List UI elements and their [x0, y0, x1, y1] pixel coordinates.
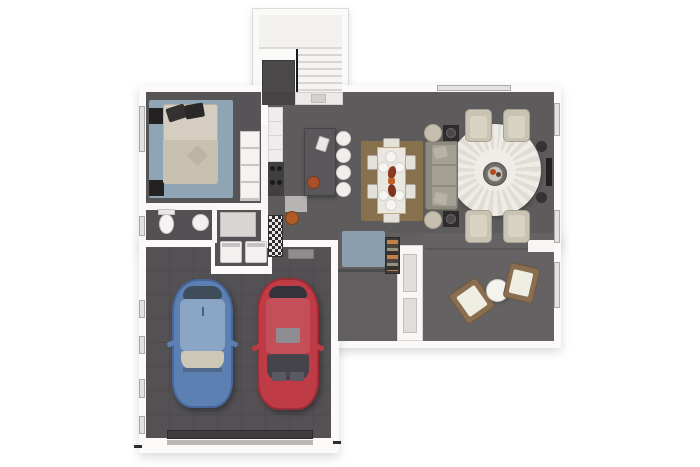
- island-stool-3: [336, 165, 351, 180]
- living-speaker-2: [536, 192, 547, 203]
- island-stool-1: [336, 131, 351, 146]
- window-garage-west-2: [139, 336, 145, 354]
- wall-bath-stub: [240, 203, 268, 210]
- window-garage-west-1: [139, 300, 145, 318]
- car-blue-windshield: [181, 351, 224, 369]
- toilet-bowl: [159, 214, 174, 234]
- kitchen-mat: [285, 196, 307, 212]
- island-pot: [307, 176, 320, 189]
- stair-closet: [262, 60, 295, 96]
- window-bedroom-west: [139, 106, 145, 152]
- living-speaker-1: [536, 141, 547, 152]
- laundry-counter: [220, 212, 256, 237]
- step-marker-left: [134, 445, 142, 448]
- window-living-north: [437, 85, 511, 91]
- stove-burner-1: [270, 166, 275, 171]
- armchair-bottom-left-cushion: [470, 215, 487, 237]
- dryer-top: [247, 243, 265, 247]
- living-console: [546, 158, 552, 186]
- step-marker-right: [333, 441, 341, 444]
- window-bath-west: [139, 216, 145, 236]
- wall-bedroom-bath: [146, 203, 217, 210]
- window-den-east: [554, 262, 560, 308]
- window-living-east-2: [554, 210, 560, 243]
- tray-item-2: [496, 172, 501, 177]
- dining-plate-top: [385, 151, 397, 163]
- wall-den-stub: [528, 240, 554, 252]
- stair-landing: [259, 15, 342, 48]
- car-red-roof: [266, 298, 310, 354]
- den-floor-seam: [425, 248, 528, 250]
- car-blue-cowl: [183, 368, 222, 372]
- garage-entry-mat: [288, 249, 314, 259]
- armchair-top-right-cushion: [508, 116, 525, 138]
- closet-shelving: [240, 131, 260, 201]
- bath-sink: [192, 214, 209, 231]
- armchair-top-left-cushion: [470, 116, 487, 138]
- kitchen-sink: [311, 94, 326, 103]
- car-blue-antenna: [202, 307, 204, 316]
- garage-door-exterior: [167, 440, 313, 445]
- stove-burner-4: [277, 180, 282, 185]
- stove-burner-3: [270, 180, 275, 185]
- kitchen-cabinets: [268, 107, 283, 162]
- car-red-rear-window: [269, 286, 307, 298]
- nightstand-top: [149, 108, 164, 124]
- car-red-sunroof: [276, 328, 300, 343]
- window-garage-west-3: [139, 379, 145, 398]
- wall-bath-laundry: [212, 210, 217, 243]
- car-red-seat-right: [290, 372, 304, 381]
- entry-threshold: [338, 269, 385, 272]
- wall-bedroom-hall: [261, 125, 268, 248]
- washer-top: [222, 243, 240, 247]
- car-red-seat-left: [272, 372, 286, 381]
- side-table-bottom-tray: [446, 214, 456, 224]
- dining-dish: [388, 178, 395, 184]
- dining-chair-right-2: [405, 184, 416, 199]
- sofa-pillow-2: [433, 192, 448, 205]
- ottoman-top: [424, 124, 442, 142]
- island-stool-2: [336, 148, 351, 163]
- window-living-east-1: [554, 103, 560, 136]
- kitchen-plant: [285, 211, 299, 225]
- dining-plate-bottom: [385, 199, 397, 211]
- armchair-bottom-right-cushion: [508, 215, 525, 237]
- entry-glass-1: [403, 254, 417, 292]
- stair-treads: [298, 49, 342, 96]
- entry-bookshelf-items: [387, 240, 398, 271]
- kitchen-runner-checkered: [268, 215, 283, 257]
- ottoman-bottom: [424, 211, 442, 229]
- floor-plan-image: [0, 0, 700, 467]
- bed-foot-fold: [163, 140, 218, 184]
- island-stool-4: [336, 182, 351, 197]
- nightstand-bottom: [149, 180, 164, 196]
- car-blue-rear-window: [183, 286, 222, 299]
- stove-burner-2: [277, 166, 282, 171]
- window-garage-west-4: [139, 416, 145, 434]
- garage-door: [167, 430, 313, 439]
- stair-railing: [296, 49, 298, 96]
- side-table-top-tray: [446, 128, 456, 138]
- entry-glass-2: [403, 298, 417, 333]
- kitchen-counter-dark: [262, 92, 295, 105]
- dining-chair-right-1: [405, 155, 416, 170]
- entry-rug: [342, 231, 385, 267]
